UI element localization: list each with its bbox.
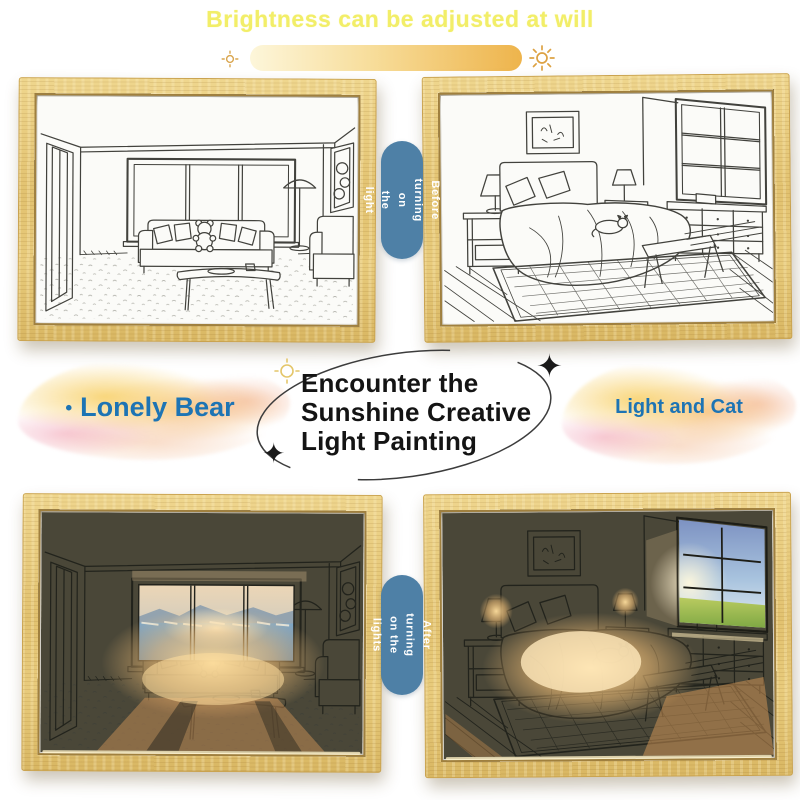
heading-line: Sunshine Creative — [301, 398, 551, 427]
sparkle-icon: ✦ — [536, 350, 563, 382]
product-tag-label: Light and Cat — [615, 396, 743, 418]
living-room-line-art — [36, 96, 357, 324]
promo-banner: Brightness can be adjusted at will — [0, 0, 800, 800]
frame-bedroom-sketch — [422, 73, 793, 343]
bullet-dot: • — [65, 397, 72, 419]
heading-line: Light Painting — [301, 427, 551, 456]
heading-line: Encounter the — [301, 369, 551, 398]
caption-before-text: Before turning on the light — [361, 178, 444, 221]
page-title: Brightness can be adjusted at will — [0, 6, 800, 33]
sun-outline-icon — [272, 356, 302, 386]
main-heading: Encounter the Sunshine Creative Light Pa… — [301, 369, 551, 456]
caption-after-pill: After turning on the lights — [381, 575, 423, 695]
sun-bright-icon — [527, 43, 557, 73]
frame-glass — [439, 508, 777, 762]
product-tag-label: Lonely Bear — [80, 392, 235, 422]
brightness-slider[interactable] — [250, 45, 522, 71]
bedroom-line-art — [441, 92, 773, 323]
caption-after-text: After turning on the lights — [369, 613, 435, 656]
frame-living-room-sketch — [17, 77, 376, 343]
product-tag-lonely-bear: •Lonely Bear — [30, 392, 270, 423]
bedroom-lit-art — [442, 511, 774, 759]
product-tag-light-and-cat: Light and Cat — [572, 396, 786, 419]
living-room-lit-art — [40, 512, 363, 754]
frame-glass — [438, 89, 776, 327]
frame-glass — [37, 509, 366, 757]
frame-bedroom-lit — [423, 492, 793, 779]
frame-living-room-lit — [21, 493, 382, 773]
caption-before-pill: Before turning on the light — [381, 141, 423, 259]
sun-dim-icon — [220, 49, 240, 69]
frame-glass — [33, 93, 360, 327]
sparkle-icon: ✦ — [262, 440, 285, 468]
